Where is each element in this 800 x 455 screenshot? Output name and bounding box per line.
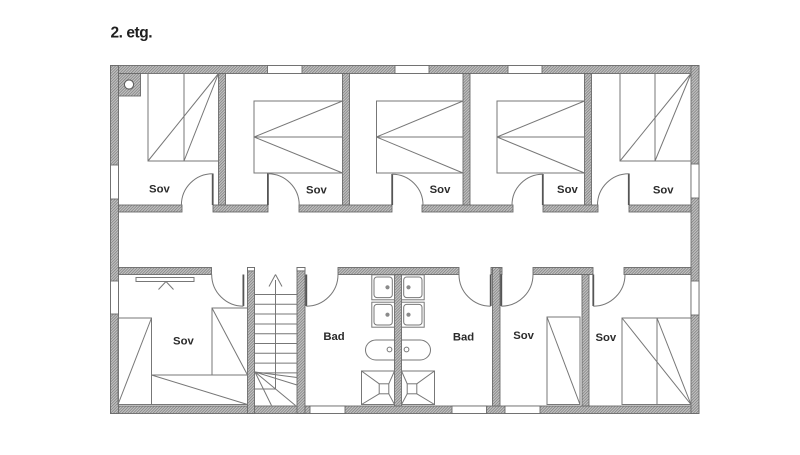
- svg-text:Sov: Sov: [173, 336, 194, 348]
- svg-text:Sov: Sov: [149, 184, 170, 196]
- svg-text:Bad: Bad: [453, 332, 474, 344]
- svg-text:Sov: Sov: [595, 332, 616, 344]
- svg-text:Sov: Sov: [653, 184, 674, 196]
- svg-text:Sov: Sov: [513, 330, 534, 342]
- svg-text:Sov: Sov: [306, 185, 327, 197]
- svg-text:Bad: Bad: [323, 331, 344, 343]
- svg-text:Sov: Sov: [557, 184, 578, 196]
- svg-text:Sov: Sov: [430, 184, 451, 196]
- svg-text:2. etg.: 2. etg.: [111, 25, 153, 42]
